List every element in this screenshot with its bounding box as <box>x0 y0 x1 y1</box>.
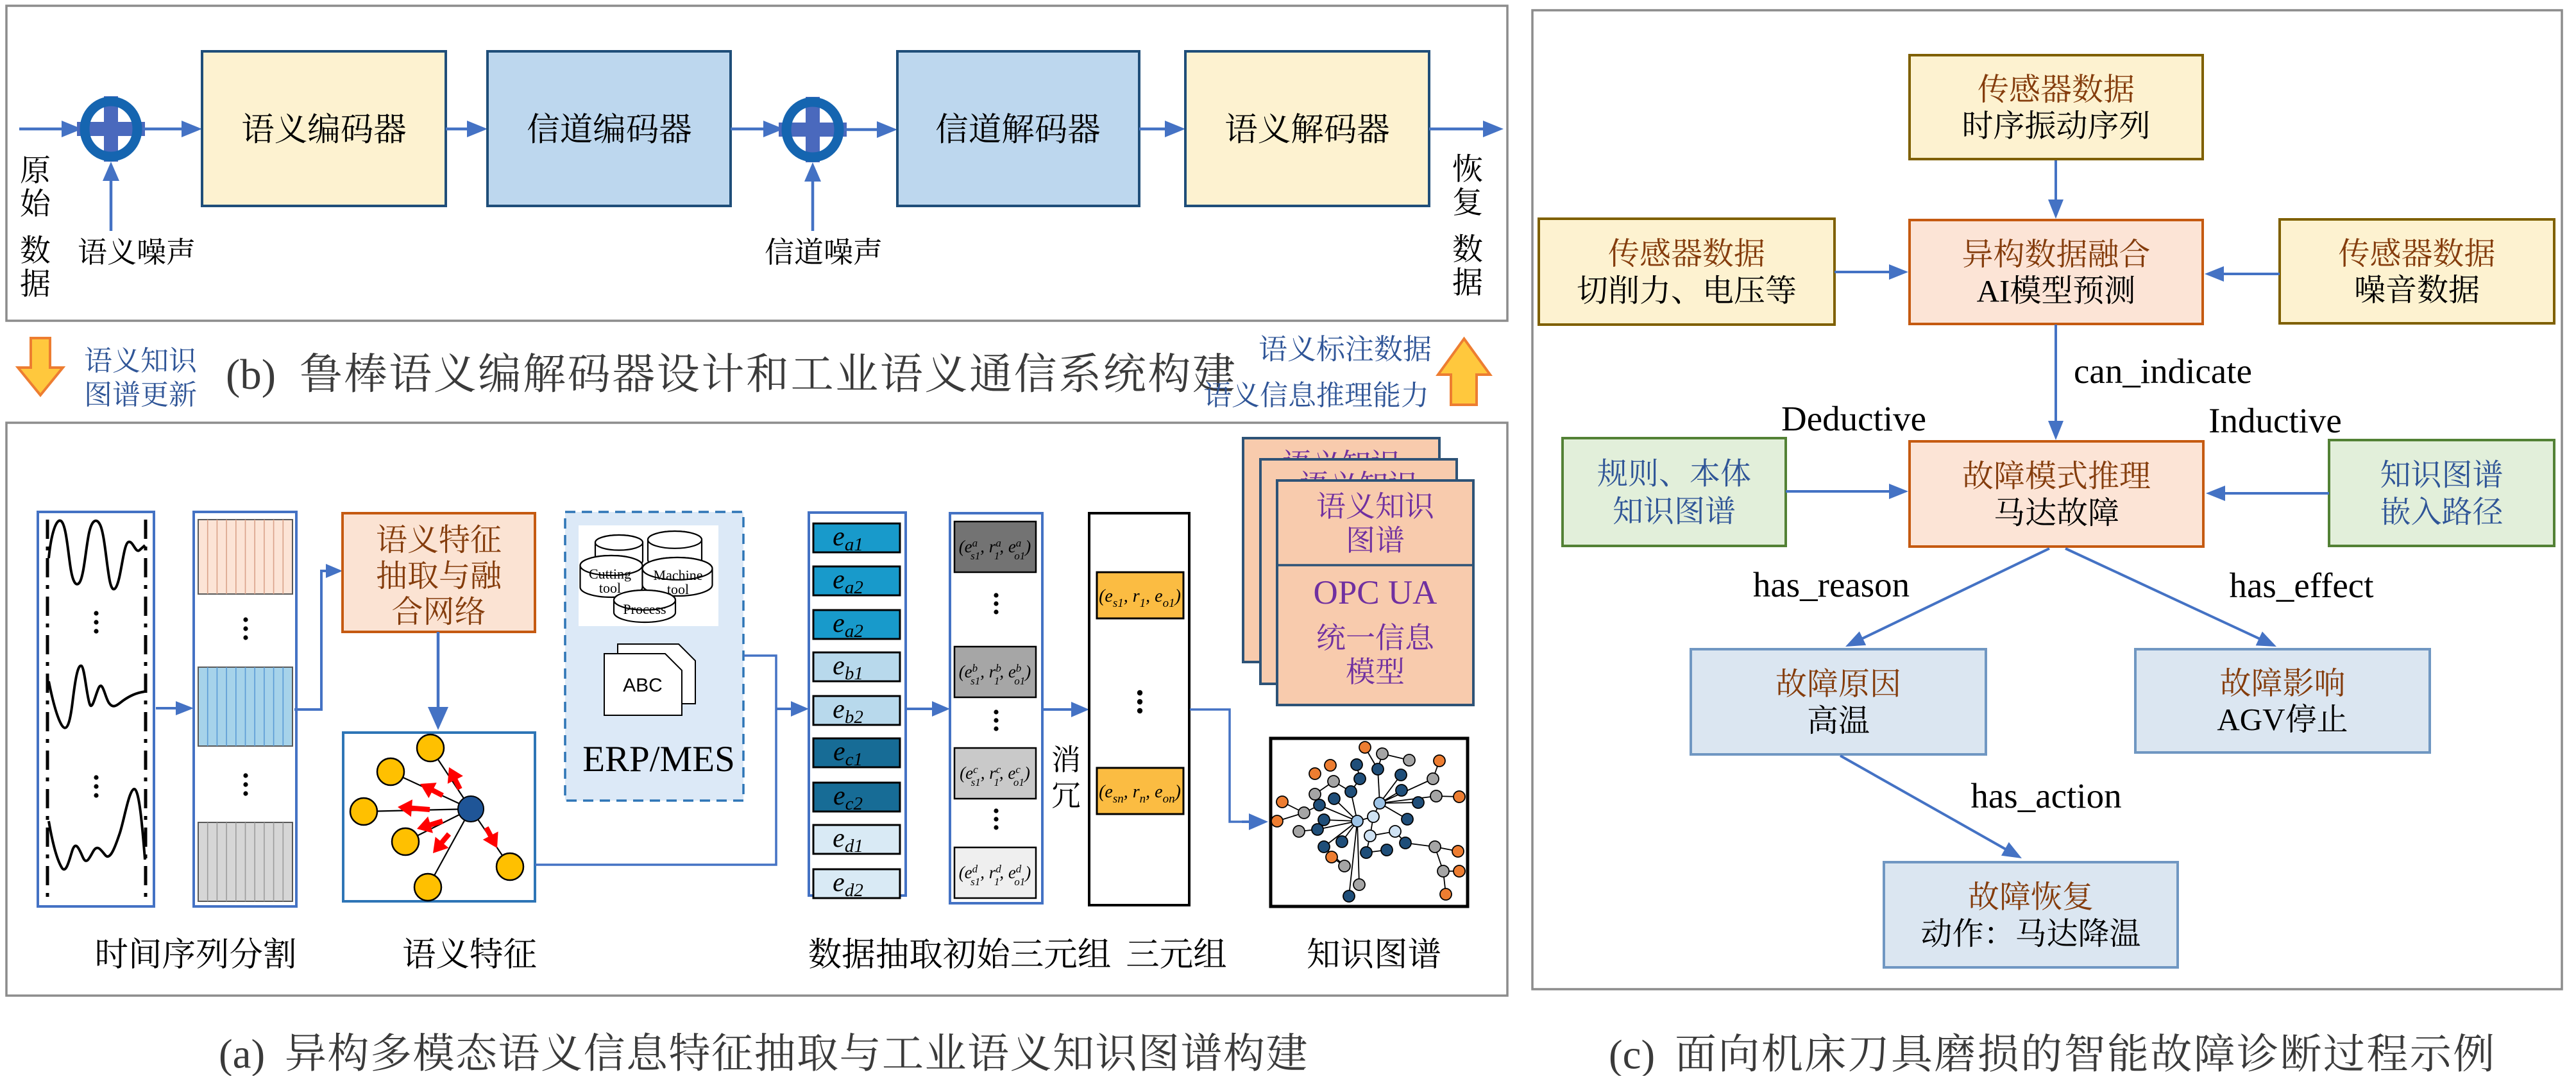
svg-text:Process: Process <box>623 601 666 617</box>
svg-text:Deductive: Deductive <box>1781 399 1926 438</box>
svg-text:can_indicate: can_indicate <box>2074 352 2252 391</box>
svg-text:has_effect: has_effect <box>2230 566 2374 605</box>
svg-text:OPC UA: OPC UA <box>1314 574 1437 611</box>
svg-text:(b): (b) <box>226 351 276 398</box>
svg-text:tool: tool <box>599 580 621 596</box>
svg-text:has_reason: has_reason <box>1753 565 1910 604</box>
svg-text:has_action: has_action <box>1970 776 2121 815</box>
svg-text:ABC: ABC <box>623 675 663 696</box>
svg-text:Inductive: Inductive <box>2208 401 2342 440</box>
svg-text:tool: tool <box>667 581 689 597</box>
svg-text:(a): (a) <box>219 1031 265 1076</box>
svg-text:ERP/MES: ERP/MES <box>582 739 735 779</box>
svg-text:AI: AI <box>1977 273 2010 309</box>
svg-text:AGV: AGV <box>2217 702 2285 737</box>
svg-text:(c): (c) <box>1609 1032 1655 1076</box>
